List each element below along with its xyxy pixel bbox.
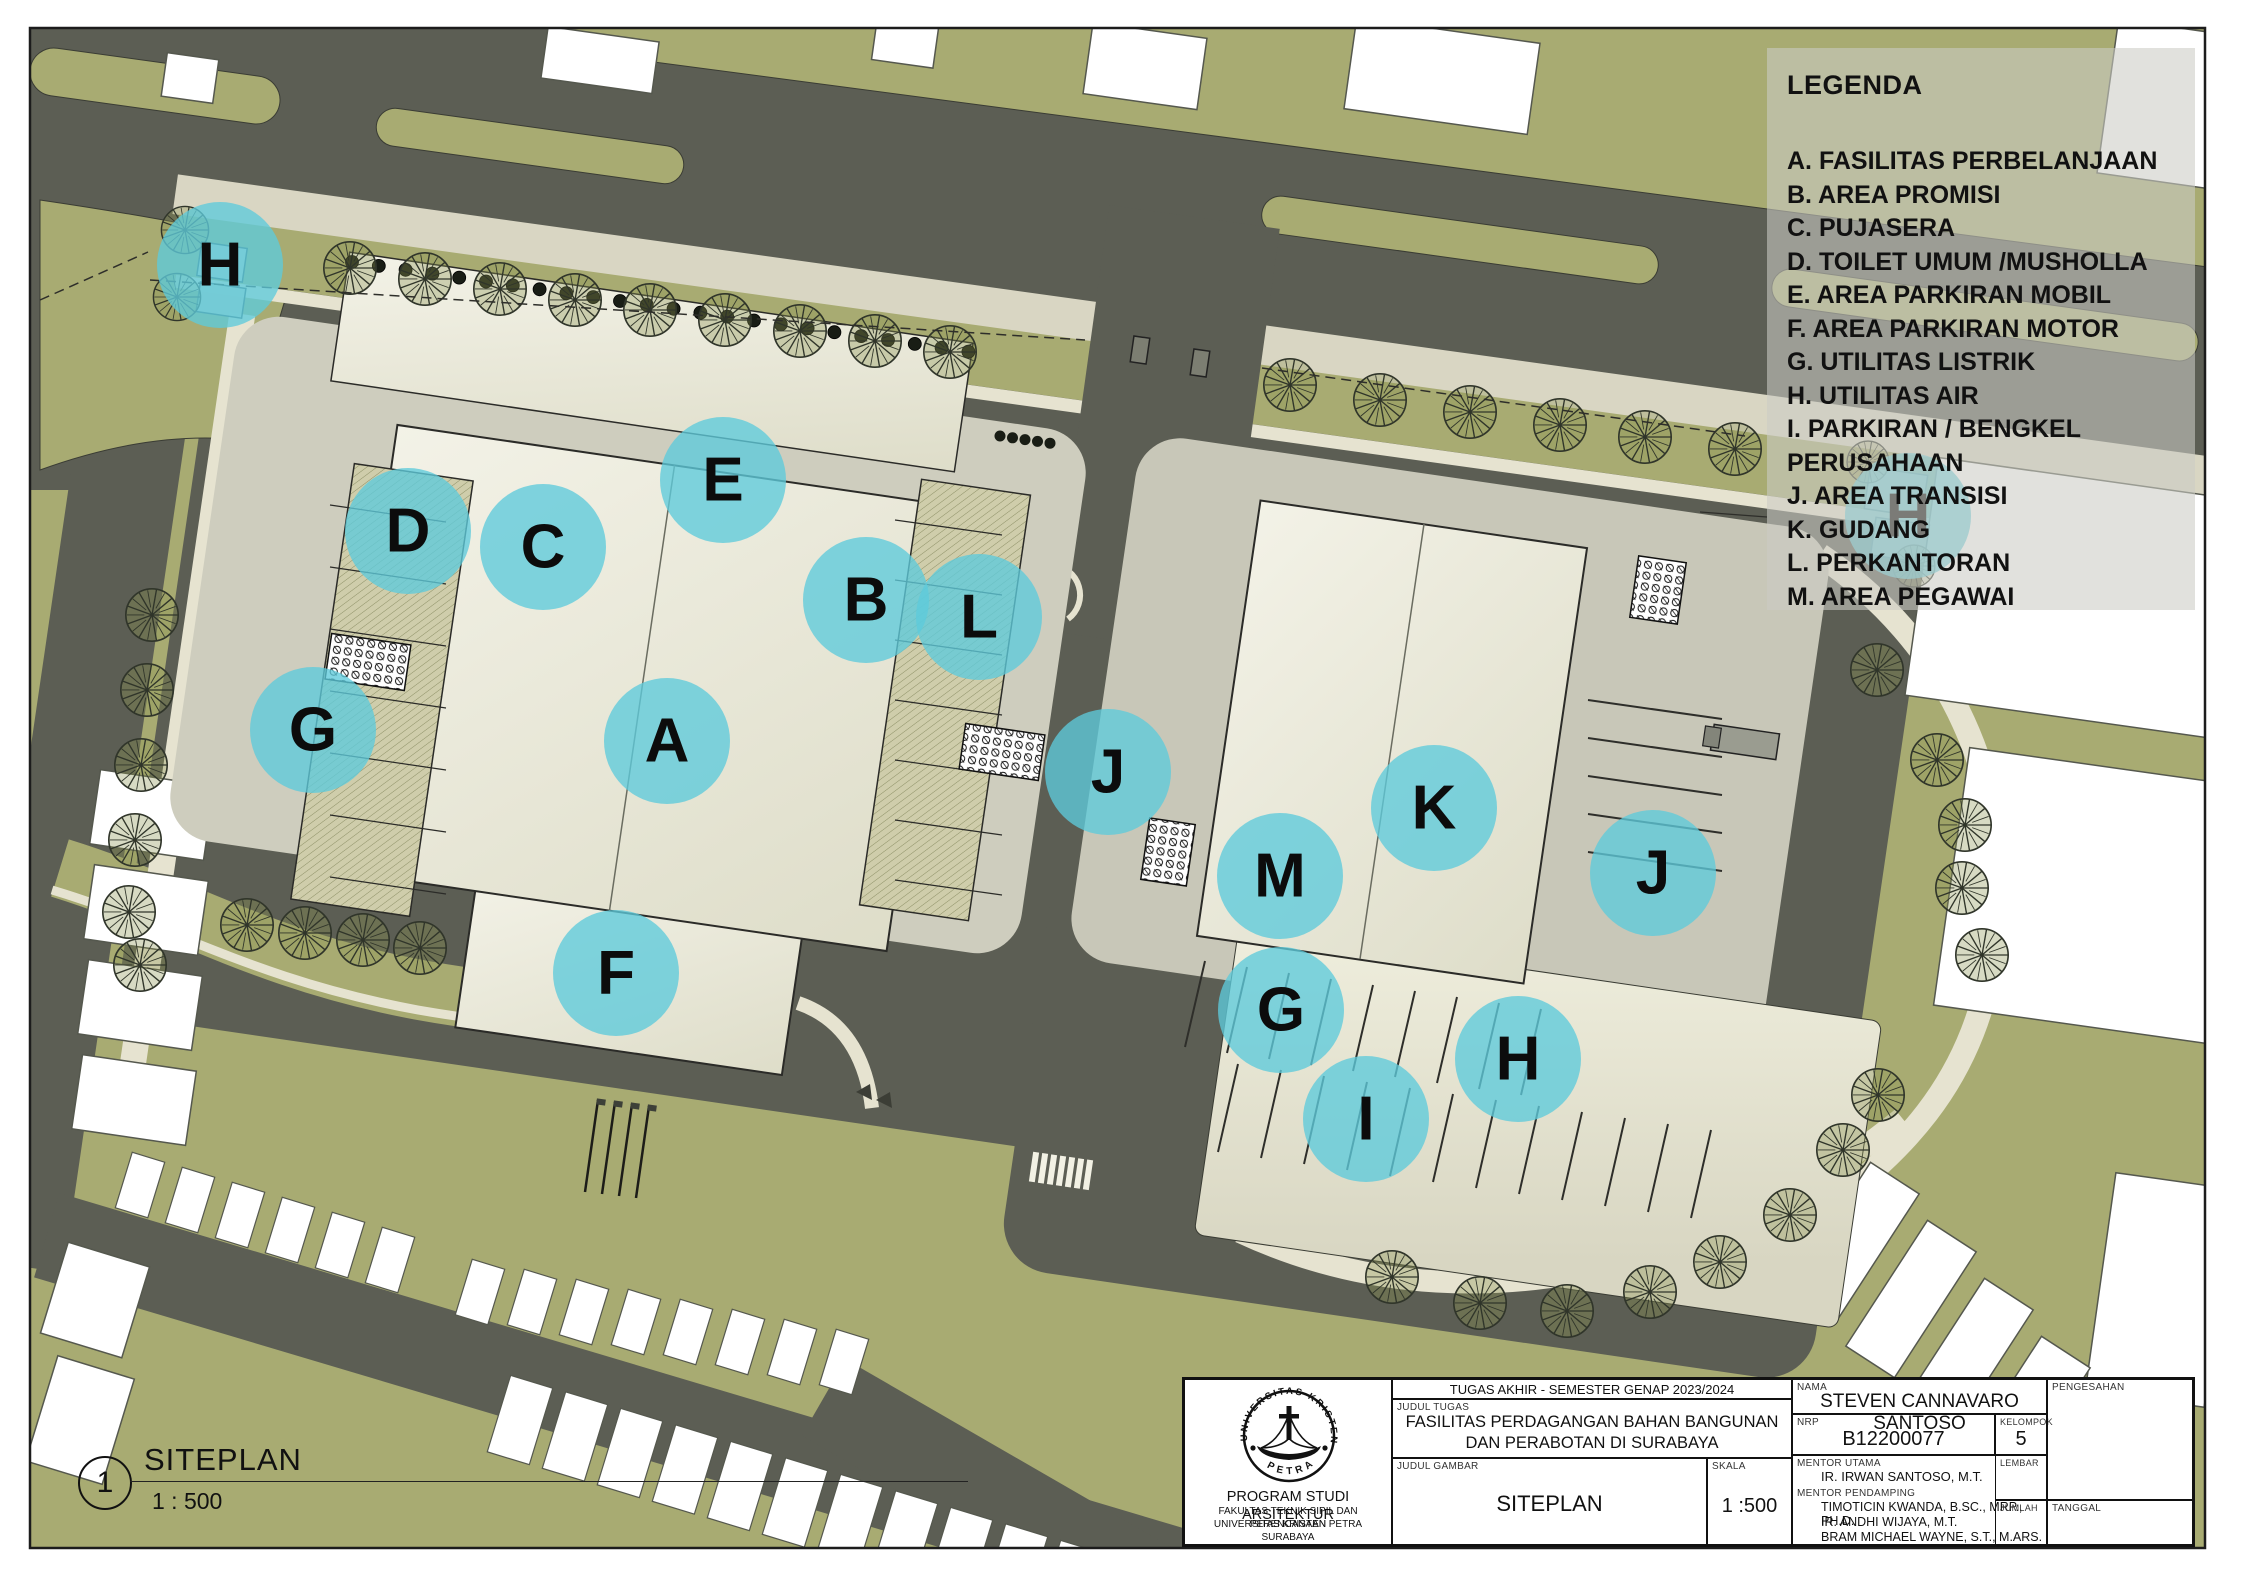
judul-tugas-cell: JUDUL TUGAS FASILITAS PERDAGANGAN BAHAN … bbox=[1392, 1399, 1792, 1458]
judul-tugas-label: JUDUL TUGAS bbox=[1397, 1402, 1469, 1413]
drawing-number-bubble: 1 bbox=[78, 1456, 132, 1510]
svg-text:L: L bbox=[960, 583, 998, 652]
svg-text:H: H bbox=[1496, 1025, 1541, 1094]
site-marker-I: I bbox=[1303, 1056, 1429, 1182]
legend-item-I: I. PARKIRAN / BENGKEL PERUSAHAAN bbox=[1787, 413, 2185, 480]
drawing-title: SITEPLAN bbox=[144, 1442, 302, 1478]
nrp-label: NRP bbox=[1797, 1417, 1819, 1428]
svg-text:J: J bbox=[1636, 839, 1670, 908]
site-marker-G: G bbox=[1218, 947, 1344, 1073]
pengesahan-cell: PENGESAHAN bbox=[2047, 1379, 2193, 1500]
nrp-cell: NRP B12200077 bbox=[1792, 1414, 1995, 1455]
svg-text:I: I bbox=[1357, 1085, 1374, 1154]
site-marker-K: K bbox=[1371, 745, 1497, 871]
lembar-cell: LEMBAR bbox=[1995, 1455, 2047, 1500]
svg-text:D: D bbox=[386, 497, 431, 566]
legend-item-L: L. PERKANTORAN bbox=[1787, 547, 2185, 581]
judul-tugas-line1: FASILITAS PERDAGANGAN BAHAN BANGUNAN bbox=[1393, 1413, 1791, 1432]
svg-text:K: K bbox=[1412, 774, 1457, 843]
mentor-pendamping-label: MENTOR PENDAMPING bbox=[1797, 1488, 1915, 1499]
institution-cell: UNIVERSITAS KRISTEN PETRA PROGRAM STUDI … bbox=[1184, 1379, 1392, 1545]
site-marker-D: D bbox=[345, 468, 471, 594]
site-marker-F: F bbox=[553, 910, 679, 1036]
university-logo: UNIVERSITAS KRISTEN PETRA bbox=[1237, 1384, 1341, 1488]
svg-text:B: B bbox=[844, 566, 889, 635]
legend-item-G: G. UTILITAS LISTRIK bbox=[1787, 346, 2185, 380]
judul-gambar-label: JUDUL GAMBAR bbox=[1397, 1461, 1479, 1472]
legend-list: A. FASILITAS PERBELANJAANB. AREA PROMISI… bbox=[1787, 145, 2185, 614]
legend-item-J: J. AREA TRANSISI bbox=[1787, 480, 2185, 514]
site-marker-H: H bbox=[1455, 996, 1581, 1122]
svg-text:G: G bbox=[1257, 976, 1305, 1045]
institution-university: UNIVERSITAS KRISTEN PETRA bbox=[1185, 1519, 1391, 1532]
site-marker-H: H bbox=[157, 202, 283, 328]
tanggal-cell: TANGGAL bbox=[2047, 1500, 2193, 1545]
legend-item-B: B. AREA PROMISI bbox=[1787, 179, 2185, 213]
kelompok-label: KELOMPOK bbox=[2000, 1417, 2053, 1427]
mentor-utama-value: IR. IRWAN SANTOSO, M.T. bbox=[1821, 1469, 1983, 1484]
svg-text:M: M bbox=[1254, 842, 1306, 911]
site-marker-C: C bbox=[480, 484, 606, 610]
site-marker-J: J bbox=[1590, 810, 1716, 936]
svg-text:C: C bbox=[521, 513, 566, 582]
jumlah-cell: JUMLAH bbox=[1995, 1500, 2047, 1545]
pengesahan-label: PENGESAHAN bbox=[2052, 1382, 2124, 1393]
institution-city: SURABAYA bbox=[1185, 1532, 1391, 1545]
mentor-pendamping-2: IR. ANDHI WIJAYA, M.T. bbox=[1821, 1515, 1957, 1529]
jumlah-label: JUMLAH bbox=[2000, 1503, 2038, 1513]
skala-cell: SKALA 1 :500 bbox=[1707, 1458, 1792, 1545]
lembar-label: LEMBAR bbox=[2000, 1458, 2039, 1468]
svg-text:F: F bbox=[597, 939, 635, 1008]
tanggal-label: TANGGAL bbox=[2052, 1503, 2101, 1514]
drawing-sheet: HDCEBLGAJKMJFGHIH LEGENDA A. FASILITAS P… bbox=[0, 0, 2245, 1587]
svg-text:G: G bbox=[289, 696, 337, 765]
kelompok-value: 5 bbox=[1996, 1428, 2046, 1451]
drawing-label: 1 SITEPLAN 1 : 500 bbox=[60, 1440, 960, 1540]
site-marker-E: E bbox=[660, 417, 786, 543]
legend-item-C: C. PUJASERA bbox=[1787, 212, 2185, 246]
mentor-utama-label: MENTOR UTAMA bbox=[1797, 1458, 1881, 1469]
svg-text:A: A bbox=[645, 707, 690, 776]
site-marker-B: B bbox=[803, 537, 929, 663]
legend-item-A: A. FASILITAS PERBELANJAAN bbox=[1787, 145, 2185, 179]
svg-text:J: J bbox=[1091, 738, 1125, 807]
skala-value: 1 :500 bbox=[1708, 1495, 1791, 1518]
legend-item-H: H. UTILITAS AIR bbox=[1787, 380, 2185, 414]
site-marker-L: L bbox=[916, 554, 1042, 680]
legend-item-M: M. AREA PEGAWAI bbox=[1787, 581, 2185, 615]
skala-label: SKALA bbox=[1712, 1461, 1746, 1472]
nrp-value: B12200077 bbox=[1793, 1428, 1994, 1451]
site-marker-J: J bbox=[1045, 709, 1171, 835]
nama-cell: NAMA STEVEN CANNAVARO SANTOSO bbox=[1792, 1379, 2047, 1414]
site-marker-G: G bbox=[250, 667, 376, 793]
site-marker-A: A bbox=[604, 678, 730, 804]
title-block: UNIVERSITAS KRISTEN PETRA PROGRAM STUDI … bbox=[1182, 1377, 2195, 1547]
drawing-title-underline bbox=[130, 1481, 968, 1482]
svg-text:H: H bbox=[198, 231, 243, 300]
kelompok-cell: KELOMPOK 5 bbox=[1995, 1414, 2047, 1455]
legend-panel: LEGENDA A. FASILITAS PERBELANJAANB. AREA… bbox=[1767, 48, 2195, 610]
header-cell: TUGAS AKHIR - SEMESTER GENAP 2023/2024 bbox=[1392, 1379, 1792, 1399]
assignment-header: TUGAS AKHIR - SEMESTER GENAP 2023/2024 bbox=[1393, 1382, 1791, 1397]
svg-text:E: E bbox=[702, 446, 743, 515]
drawing-scale: 1 : 500 bbox=[152, 1488, 222, 1515]
judul-tugas-line2: DAN PERABOTAN DI SURABAYA bbox=[1393, 1434, 1791, 1453]
legend-title: LEGENDA bbox=[1787, 70, 2185, 101]
site-marker-M: M bbox=[1217, 813, 1343, 939]
legend-item-E: E. AREA PARKIRAN MOBIL bbox=[1787, 279, 2185, 313]
legend-item-F: F. AREA PARKIRAN MOTOR bbox=[1787, 313, 2185, 347]
judul-gambar-cell: JUDUL GAMBAR SITEPLAN bbox=[1392, 1458, 1707, 1545]
judul-gambar-value: SITEPLAN bbox=[1393, 1491, 1706, 1517]
legend-item-K: K. GUDANG bbox=[1787, 514, 2185, 548]
legend-item-D: D. TOILET UMUM /MUSHOLLA bbox=[1787, 246, 2185, 280]
